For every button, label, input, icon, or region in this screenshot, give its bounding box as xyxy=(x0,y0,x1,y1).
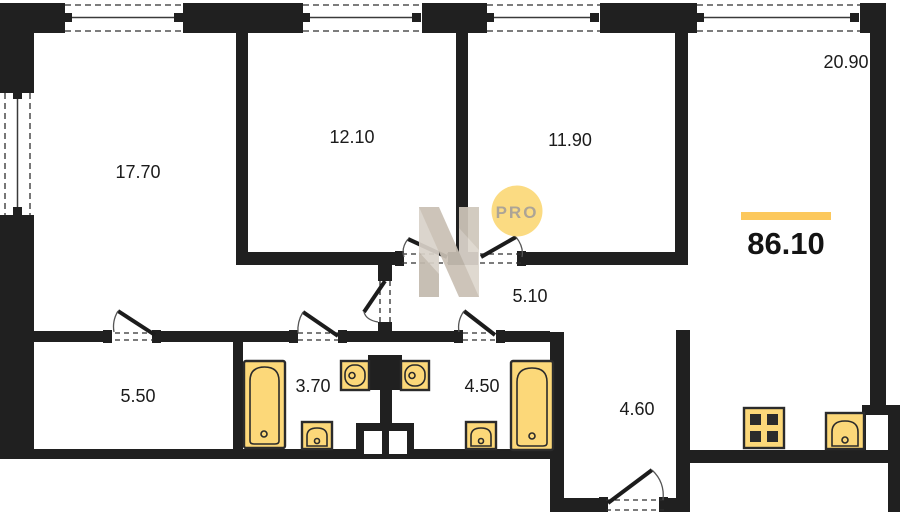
total-area-label: 86.10 xyxy=(747,226,825,261)
room-area-label: 4.50 xyxy=(464,376,499,396)
room-area-label: 11.90 xyxy=(548,130,592,150)
room-area-label: 20.90 xyxy=(823,52,868,72)
bathtub-3-70 xyxy=(244,361,285,448)
plumbing-shaft xyxy=(356,423,414,459)
total-area-underline xyxy=(741,212,831,220)
floor-plan-page: PRO 17.70 12.10 11.90 20.90 5.10 5.50 3.… xyxy=(0,0,900,512)
room-area-label: 5.50 xyxy=(120,386,155,406)
kitchen-sink xyxy=(826,413,864,449)
room-area-label: 3.70 xyxy=(295,376,330,396)
room-area-label: 5.10 xyxy=(512,286,547,306)
floor-plan: PRO 17.70 12.10 11.90 20.90 5.10 5.50 3.… xyxy=(0,0,900,512)
room-area-label: 12.10 xyxy=(329,127,374,147)
total-area: 86.10 xyxy=(741,212,831,261)
sink-right-4-50 xyxy=(401,361,429,390)
room-area-label: 4.60 xyxy=(619,399,654,419)
stove-icon xyxy=(744,408,784,448)
washbasin-4-50 xyxy=(466,422,496,449)
room-area-label: 17.70 xyxy=(115,162,160,182)
washbasin-3-70 xyxy=(302,422,332,449)
bathtub-4-50 xyxy=(511,361,553,450)
sink-left-3-70 xyxy=(341,361,369,390)
pro-badge-label: PRO xyxy=(496,203,539,222)
